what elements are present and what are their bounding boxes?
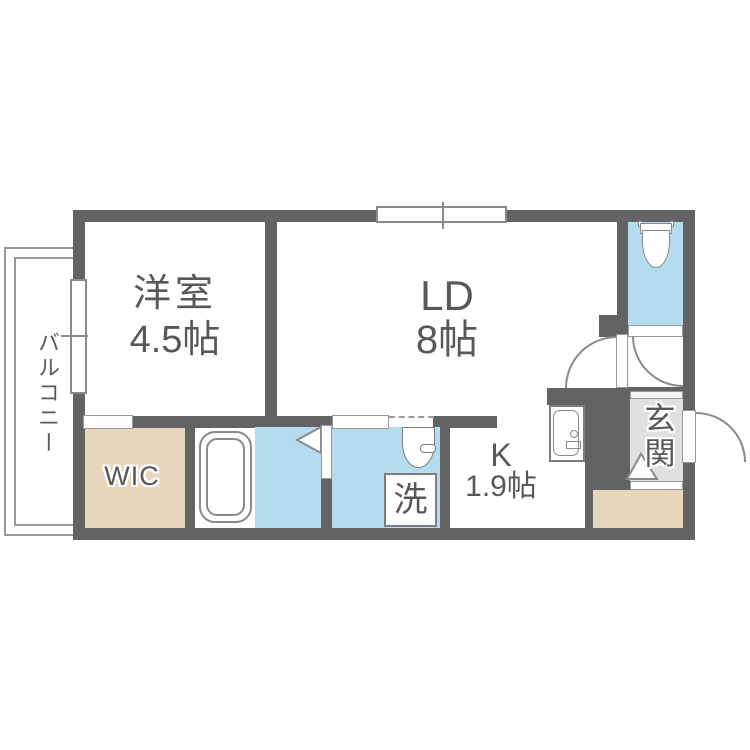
- wic-opening: [83, 415, 133, 429]
- wic-label: WIC: [92, 462, 172, 490]
- floor-plan: バルコニー: [0, 0, 750, 750]
- toilet-door-arc: [632, 336, 683, 387]
- kitchen-size: 1.9帖: [461, 471, 541, 503]
- kitchen-sink-icon: [549, 405, 585, 462]
- entry-door-leaf: [682, 410, 696, 463]
- washroom-counter-dashline: [389, 416, 434, 418]
- wall-genkan-lower: [585, 490, 593, 528]
- genkan-top-strip: [630, 391, 683, 399]
- bathtub-inner-line: [206, 438, 245, 516]
- living-room-label: LD: [367, 276, 527, 316]
- wall-wic-bath: [185, 427, 195, 528]
- western-room-label: 洋室: [95, 274, 255, 314]
- bath-door-leaf: [321, 425, 332, 479]
- balcony-label: バルコニー: [33, 323, 61, 463]
- washbasin-faucet-icon: [420, 444, 436, 453]
- washroom-opening: [332, 415, 389, 429]
- toilet-icon: [638, 218, 674, 270]
- wall-right: [683, 210, 695, 540]
- wall-washroom-kitchen: [440, 427, 450, 528]
- living-room-size: 8帖: [367, 320, 527, 360]
- wall-bottom: [73, 528, 695, 540]
- entry-floor: [593, 490, 683, 528]
- bath-door-triangle-icon: [295, 425, 323, 455]
- wall-bath-washroom: [321, 478, 332, 528]
- washing-machine-label: 洗: [384, 473, 437, 527]
- wall-western-ld: [265, 210, 277, 428]
- genkan-label: 玄関: [640, 399, 674, 475]
- hall-door-arc: [565, 336, 617, 388]
- genkan-step-strip: [630, 481, 683, 490]
- entry-door-arc: [696, 412, 746, 462]
- hall-door-leaf: [616, 334, 628, 388]
- window-left-tick: [61, 335, 88, 337]
- kitchen-label: K: [461, 438, 541, 472]
- window-top-tick: [442, 202, 444, 229]
- western-room-size: 4.5帖: [95, 320, 255, 360]
